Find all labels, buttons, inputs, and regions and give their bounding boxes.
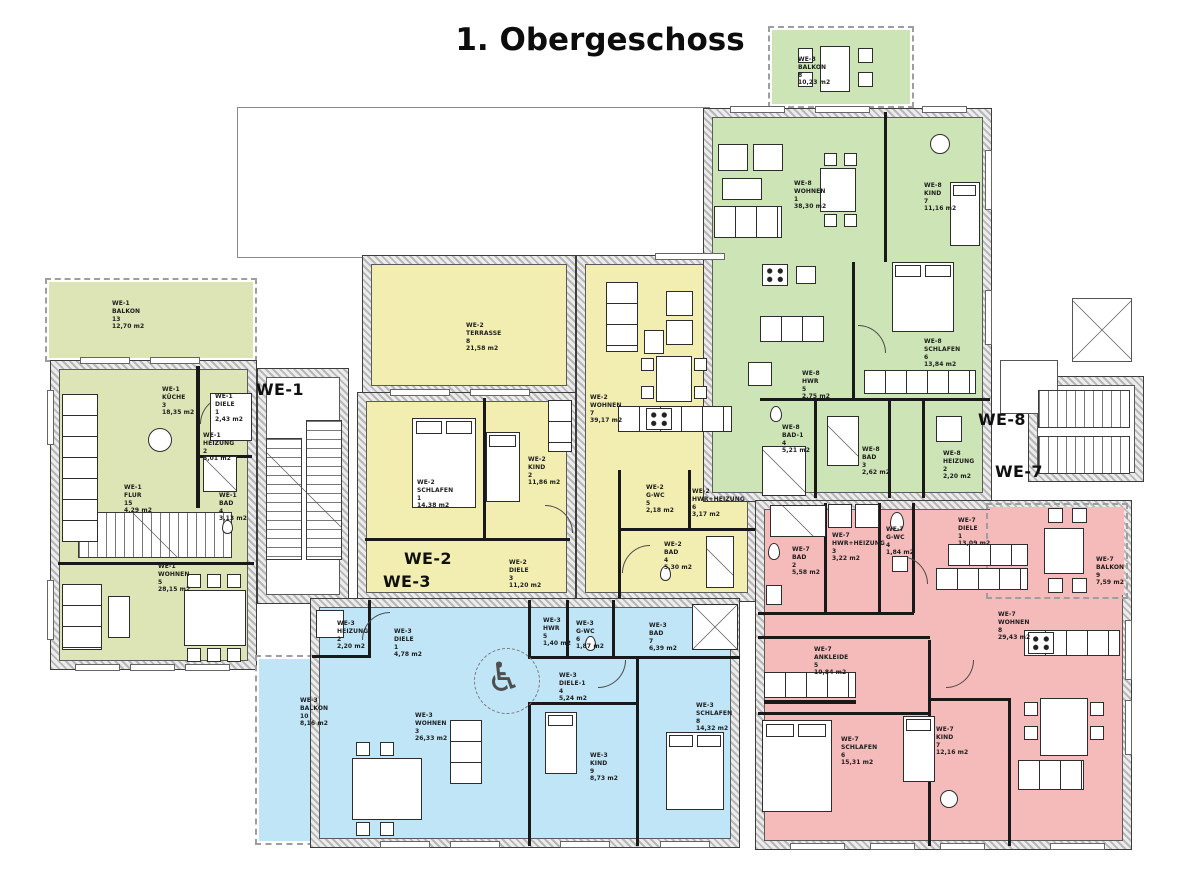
- room-label: WE-3 DIELE-1 4 5,24 m2: [559, 672, 587, 703]
- stool: [930, 134, 950, 154]
- window: [390, 389, 450, 396]
- pillow: [953, 185, 976, 196]
- room-label: WE-1 WOHNEN 5 28,15 m2: [158, 563, 190, 594]
- heater-unit: [936, 416, 962, 442]
- chair: [641, 358, 654, 371]
- coffee-table: [722, 178, 762, 200]
- room-label: WE-2 G-WC 5 2,18 m2: [646, 484, 674, 515]
- pillow: [548, 715, 573, 726]
- room-label: WE-8 HWR 5 2,75 m2: [802, 370, 830, 401]
- interior-wall: [1008, 698, 1011, 846]
- interior-wall: [688, 470, 691, 528]
- chair: [641, 386, 654, 399]
- window: [1050, 843, 1105, 850]
- hwr-unit: [828, 504, 852, 528]
- interior-wall: [760, 398, 990, 401]
- window: [130, 664, 175, 671]
- pillow: [798, 724, 826, 737]
- room-label: WE-7 HWR+HEIZUNG 3 3,22 m2: [832, 532, 885, 563]
- room-label: WE-8 BALKON 8 10,23 m2: [798, 56, 830, 87]
- interior-wall: [196, 458, 200, 508]
- chair: [356, 742, 370, 756]
- room-label: WE-3 HWR 5 1,40 m2: [543, 617, 571, 648]
- stool: [940, 790, 958, 808]
- room-label: WE-2 KIND 2 11,86 m2: [528, 456, 560, 487]
- chair: [207, 574, 221, 588]
- wardrobe: [864, 370, 976, 394]
- interior-wall: [612, 600, 615, 656]
- toilet: [770, 406, 782, 422]
- room-label: WE-7 G-WC 4 1,84 m2: [886, 526, 914, 557]
- window: [870, 843, 915, 850]
- chair: [227, 574, 241, 588]
- stove: [762, 264, 788, 286]
- room-label: WE-2 TERRASSE 8 21,58 m2: [466, 322, 501, 353]
- room-label: WE-8 WOHNEN 1 38,30 m2: [794, 180, 826, 211]
- room-label: WE-1 BALKON 13 12,70 m2: [112, 300, 144, 331]
- room-label: WE-1 KÜCHE 3 18,35 m2: [162, 386, 194, 417]
- chair: [1024, 726, 1038, 740]
- window: [185, 664, 230, 671]
- window: [815, 106, 870, 113]
- room-label: WE-3 BAD 7 6,39 m2: [649, 622, 677, 653]
- stairs: [1038, 390, 1130, 428]
- interior-wall: [764, 700, 856, 704]
- interior-wall: [884, 112, 887, 262]
- room-label: WE-2 WOHNEN 7 39,17 m2: [590, 394, 622, 425]
- room-label: WE-8 SCHLAFEN 6 13,84 m2: [924, 338, 960, 369]
- interior-wall: [618, 470, 621, 598]
- pillow: [669, 735, 693, 747]
- chair: [1072, 508, 1087, 523]
- window: [985, 150, 992, 210]
- interior-wall: [312, 655, 371, 658]
- room-label: WE-1 BAD 4 3,13 m2: [219, 492, 247, 523]
- window: [380, 841, 430, 848]
- stairs-run-line: [78, 512, 232, 558]
- interior-wall: [528, 600, 531, 656]
- room-label: WE-1 FLUR 15 4,29 m2: [124, 484, 152, 515]
- pillow: [489, 435, 516, 447]
- unit-label-we1: WE-1: [256, 380, 304, 399]
- interior-wall: [365, 538, 570, 541]
- room-label: WE-7 SCHLAFEN 6 15,31 m2: [841, 736, 877, 767]
- dining-table: [1040, 698, 1088, 756]
- chair: [1048, 578, 1063, 593]
- window: [150, 357, 200, 364]
- interior-wall: [528, 702, 531, 846]
- window: [75, 664, 120, 671]
- room-label: WE-3 DIELE 1 4,78 m2: [394, 628, 422, 659]
- shower: [706, 536, 734, 588]
- interior-wall: [196, 366, 200, 458]
- balcony-we1: [45, 278, 257, 362]
- window: [940, 843, 985, 850]
- sofa: [450, 720, 482, 784]
- stove: [646, 408, 672, 430]
- toilet: [768, 543, 780, 560]
- armchair: [666, 291, 693, 316]
- stairs: [1038, 436, 1130, 474]
- window: [560, 841, 610, 848]
- sofa: [606, 282, 638, 352]
- chair: [1048, 508, 1063, 523]
- chair: [1072, 578, 1087, 593]
- room-label: WE-2 BAD 4 5,30 m2: [664, 541, 692, 572]
- interior-wall: [636, 659, 639, 846]
- chair: [844, 214, 857, 227]
- interior-wall: [758, 612, 914, 615]
- dining-table: [184, 590, 246, 646]
- room-label: WE-7 BALKON 9 7,59 m2: [1096, 556, 1124, 587]
- window: [1125, 620, 1132, 680]
- floor-plan: 1. Obergeschoss: [0, 0, 1200, 872]
- sofa: [1018, 760, 1084, 790]
- room-label: WE-7 BAD 2 5,58 m2: [792, 546, 820, 577]
- hwr-unit: [748, 362, 772, 386]
- chair: [1024, 702, 1038, 716]
- room-label: WE-7 KIND 7 12,16 m2: [936, 726, 968, 757]
- interior-wall: [922, 398, 925, 498]
- chair: [187, 648, 201, 662]
- sofa: [714, 206, 782, 238]
- room-label: WE-2 DIELE 3 11,20 m2: [509, 559, 541, 590]
- chair: [207, 648, 221, 662]
- interior-wall: [814, 398, 817, 498]
- interior-wall: [58, 562, 254, 565]
- pillow: [895, 265, 921, 277]
- unit-label-we2: WE-2: [404, 549, 452, 568]
- hwr-unit: [855, 504, 879, 528]
- chair: [356, 822, 370, 836]
- chair: [227, 648, 241, 662]
- chair: [380, 742, 394, 756]
- room-label: WE-3 WOHNEN 3 26,33 m2: [415, 712, 447, 743]
- pillow: [766, 724, 794, 737]
- stairs-run-line: [266, 420, 342, 560]
- coffee-table: [644, 330, 664, 354]
- dining-table: [352, 758, 422, 820]
- chair: [858, 48, 873, 63]
- window: [730, 106, 785, 113]
- chair: [694, 386, 707, 399]
- armchair: [753, 144, 783, 171]
- sink: [766, 585, 782, 605]
- kitchen-counter: [618, 406, 732, 432]
- chair: [380, 822, 394, 836]
- room-label: WE-3 KIND 9 8,73 m2: [590, 752, 618, 783]
- balcony-table: [1044, 528, 1084, 574]
- chair: [1090, 726, 1104, 740]
- unit-label-we3: WE-3: [383, 572, 431, 591]
- wardrobe: [548, 400, 572, 452]
- stove: [1028, 632, 1054, 654]
- window: [985, 290, 992, 345]
- pillow: [925, 265, 951, 277]
- wheelchair-icon: ♿: [486, 658, 522, 698]
- sofa: [62, 584, 102, 650]
- room-label: WE-3 SCHLAFEN 8 14,32 m2: [696, 702, 732, 733]
- chair: [844, 153, 857, 166]
- pillow: [416, 421, 442, 434]
- room-label: WE-8 KIND 7 11,16 m2: [924, 182, 956, 213]
- armchair: [666, 320, 693, 345]
- room-label: WE-7 DIELE 1 13,09 m2: [958, 517, 990, 548]
- window: [922, 106, 967, 113]
- chair: [694, 358, 707, 371]
- unit-label-we7: WE-7: [995, 462, 1043, 481]
- room-label: WE-8 HEIZUNG 2 2,20 m2: [943, 450, 974, 481]
- page-title: 1. Obergeschoss: [380, 22, 820, 58]
- chair: [858, 72, 873, 87]
- room-label: WE-2 HWR+HEIZUNG 6 3,17 m2: [692, 488, 745, 519]
- pillow: [697, 735, 721, 747]
- interior-wall: [618, 528, 755, 531]
- round-table: [148, 428, 172, 452]
- interior-wall: [758, 636, 930, 639]
- interior-wall: [928, 698, 1010, 701]
- wardrobe: [936, 568, 1028, 590]
- chair: [1090, 702, 1104, 716]
- bathtub: [692, 604, 738, 650]
- window: [660, 841, 710, 848]
- window: [47, 580, 54, 640]
- room-label: WE-3 BALKON 10 8,16 m2: [300, 697, 328, 728]
- shower: [770, 505, 826, 537]
- dining-table: [656, 356, 692, 402]
- room-label: WE-7 ANKLEIDE 5 10,84 m2: [814, 646, 848, 677]
- chair: [824, 153, 837, 166]
- kitchen-counter: [760, 316, 824, 342]
- elevator: [1072, 298, 1132, 362]
- interior-wall: [852, 262, 855, 398]
- chair: [824, 214, 837, 227]
- window: [790, 843, 845, 850]
- armchair: [718, 144, 748, 171]
- window: [450, 841, 500, 848]
- unit-label-we8: WE-8: [978, 410, 1026, 429]
- balcony-we1-floor: [49, 282, 253, 358]
- window: [1125, 700, 1132, 755]
- room-label: WE-8 BAD 3 2,62 m2: [862, 446, 890, 477]
- sink: [796, 266, 816, 284]
- room-label: WE-3 G-WC 6 1,87 m2: [576, 620, 604, 651]
- room-label: WE-7 WOHNEN 8 29,43 m2: [998, 611, 1030, 642]
- window: [47, 390, 54, 445]
- sink: [892, 556, 908, 572]
- pillow: [446, 421, 472, 434]
- room-label: WE-1 DIELE 1 2,43 m2: [215, 393, 243, 424]
- interior-wall: [758, 712, 930, 715]
- shower: [827, 416, 859, 466]
- window: [80, 357, 130, 364]
- room-label: WE-8 BAD-1 4 5,21 m2: [782, 424, 810, 455]
- empty-roof-area: [237, 107, 710, 258]
- room-label: WE-2 SCHLAFEN 1 14,38 m2: [417, 479, 453, 510]
- room-label: WE-3 HEIZUNG 2 2,20 m2: [337, 620, 368, 651]
- coffee-table: [108, 596, 130, 638]
- pillow: [906, 719, 931, 731]
- window: [655, 253, 725, 260]
- room-label: WE-1 HEIZUNG 2 5,01 m2: [203, 432, 234, 463]
- interior-wall: [528, 656, 740, 659]
- window: [470, 389, 530, 396]
